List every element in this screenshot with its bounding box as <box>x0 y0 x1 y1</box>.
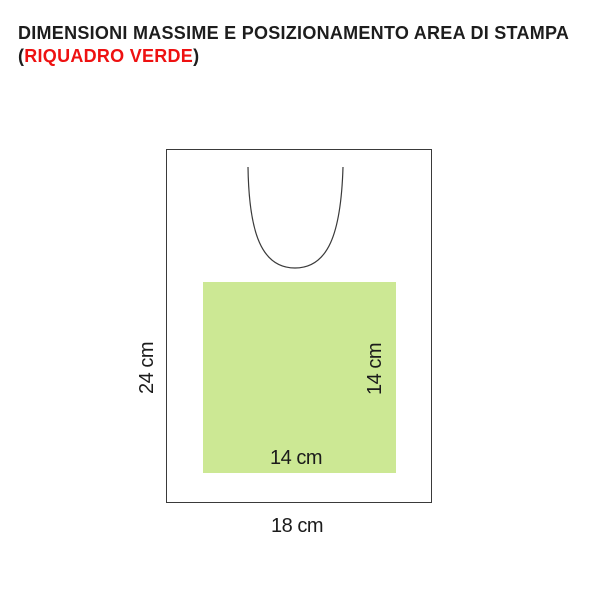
bag-height-label: 24 cm <box>137 342 157 394</box>
bag-diagram: 24 cm 14 cm 14 cm 18 cm <box>0 0 600 600</box>
bag-width-label: 18 cm <box>271 516 323 536</box>
print-area-width-label: 14 cm <box>270 448 322 468</box>
bag-neckline-curve <box>244 162 348 272</box>
print-area-height-label: 14 cm <box>365 343 385 395</box>
page: DIMENSIONI MASSIME E POSIZIONAMENTO AREA… <box>0 0 600 600</box>
